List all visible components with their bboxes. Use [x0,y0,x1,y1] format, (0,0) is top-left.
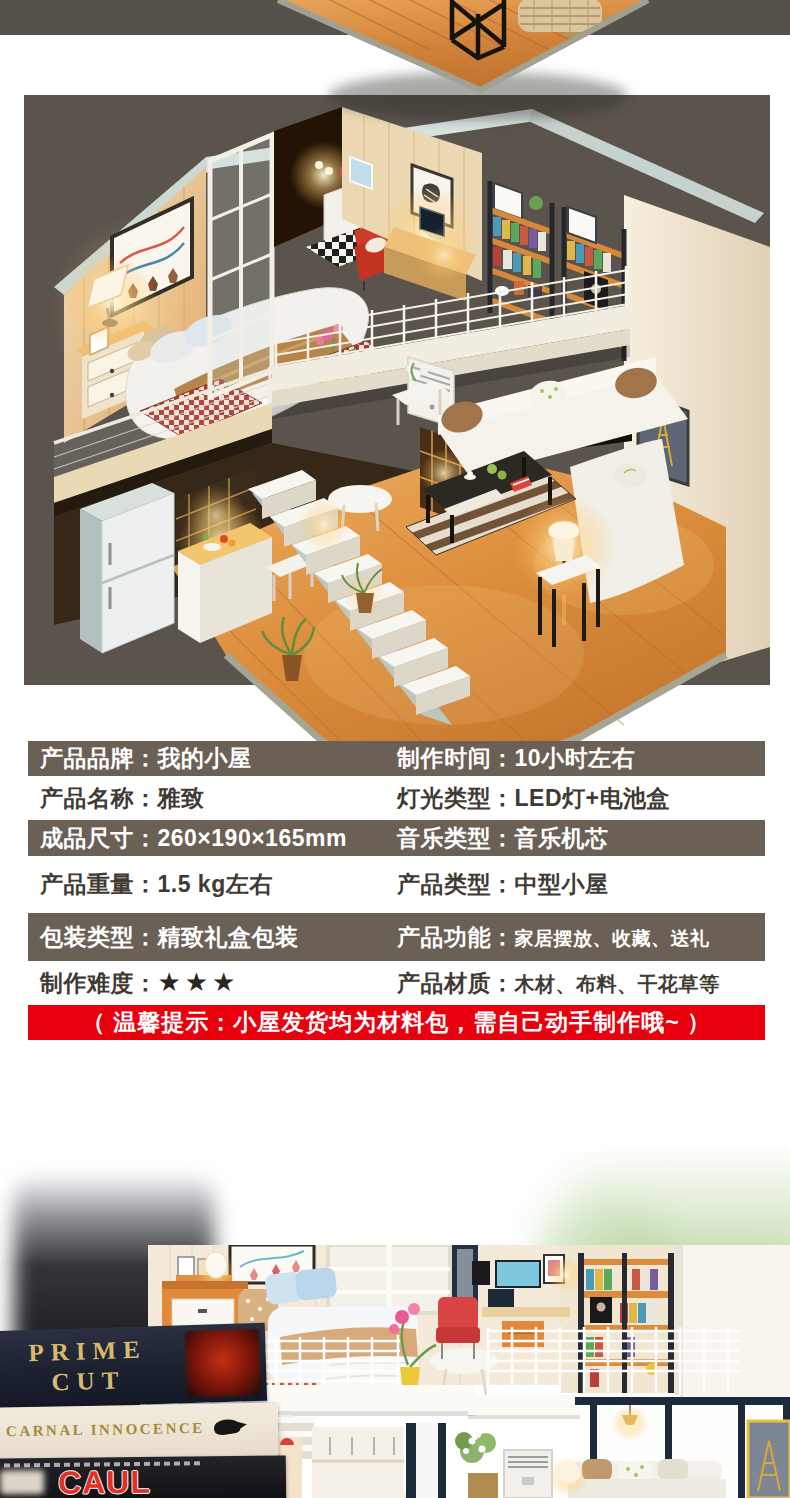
window [328,1245,450,1313]
kitchen-cabinets [312,1427,404,1498]
spec-value: 中型小屋 [515,871,609,897]
blurred-text-blob [0,1470,44,1494]
spec-label: 成品尺寸： [40,825,158,851]
spec-row: 产品名称：雅致 灯光类型：LED灯+电池盒 [28,776,765,820]
notice-text: （ 温馨提示：小屋发货均为材料包，需自己动手制作哦~ ） [82,1007,711,1038]
spec-label: 产品功能： [397,924,515,950]
spec-row: 产品品牌：我的小屋 制作时间：10小时左右 [28,741,765,776]
spec-row: 制作难度：★★★ 产品材质：木材、布料、干花草等 [28,961,765,1005]
product-spec-table: 产品品牌：我的小屋 制作时间：10小时左右 产品名称：雅致 灯光类型：LED灯+… [28,741,765,1040]
spec-label: 产品材质： [397,970,515,996]
sofa [548,1457,726,1498]
spec-label: 制作时间： [397,745,515,771]
green-mat [560,2,700,50]
notice-bar: （ 温馨提示：小屋发货均为材料包，需自己动手制作哦~ ） [28,1005,765,1040]
glass-partition [406,1423,446,1498]
book-spine-prime-cut: PRIME CUT [0,1323,267,1410]
book-title: CAUL [58,1464,151,1498]
book-title: PRIME CUT [7,1334,169,1399]
spec-value: LED灯+电池盒 [515,785,670,811]
spec-row: 包装类型：精致礼盒包装 产品功能：家居摆放、收藏、送礼 [28,913,765,961]
wood-board [278,0,648,90]
spec-value: 家居摆放、收藏、送礼 [515,928,710,949]
book-cover-art [185,1329,261,1397]
board-edge-trim [278,0,480,90]
spec-label: 包装类型： [40,924,158,950]
wicker-basket [518,0,602,32]
spec-label: 产品类型： [397,871,515,897]
chandelier [612,1405,648,1441]
spec-label: 产品重量： [40,871,158,897]
spec-row: 成品尺寸：260×190×165mm 音乐类型：音乐机芯 [28,820,765,856]
bird-icon [213,1417,241,1436]
book-spine-carnal-innocence: CARNAL INNOCENCE [0,1403,278,1462]
spec-label: 音乐类型： [397,825,515,851]
difficulty-stars: ★★★ [158,967,240,997]
spec-label: 产品名称： [40,785,158,811]
spec-value: 260×190×165mm [158,825,347,851]
main-product-photo [24,95,770,685]
glass-partition-doors [210,135,272,397]
spec-label: 制作难度： [40,970,158,996]
eiffel-tower-picture [748,1421,790,1498]
spec-value: 1.5 kg左右 [158,871,273,897]
spec-value: 雅致 [158,785,205,811]
bedside-lamp [66,255,158,347]
fridge [80,483,174,653]
spec-value: 我的小屋 [158,745,252,771]
book-spine-red-letters: CAUL [0,1455,286,1498]
spec-value: 10小时左右 [515,745,636,771]
spec-label: 灯光类型： [397,785,515,811]
book-title: CARNAL INNOCENCE [6,1420,205,1440]
product-detail-page: 产品品牌：我的小屋 制作时间：10小时左右 产品名称：雅致 灯光类型：LED灯+… [0,0,790,1498]
bottom-photo: PRIME CUT CARNAL INNOCENCE CAUL [0,1095,790,1498]
cube-side-table [452,0,504,58]
spec-value: 精致礼盒包装 [158,924,299,950]
spec-row: 产品重量：1.5 kg左右 产品类型：中型小屋 [28,856,765,913]
photo-white-fade [0,1095,790,1265]
spec-label: 产品品牌： [40,745,158,771]
board-edge-trim [480,0,648,90]
dollhouse-interior-night-illustration [24,95,770,740]
spec-value: 木材、布料、干花草等 [515,973,720,995]
spec-value: 音乐机芯 [515,825,609,851]
air-conditioner [504,1450,552,1498]
top-photo-background [0,0,790,35]
flower-bouquet [455,1432,498,1498]
